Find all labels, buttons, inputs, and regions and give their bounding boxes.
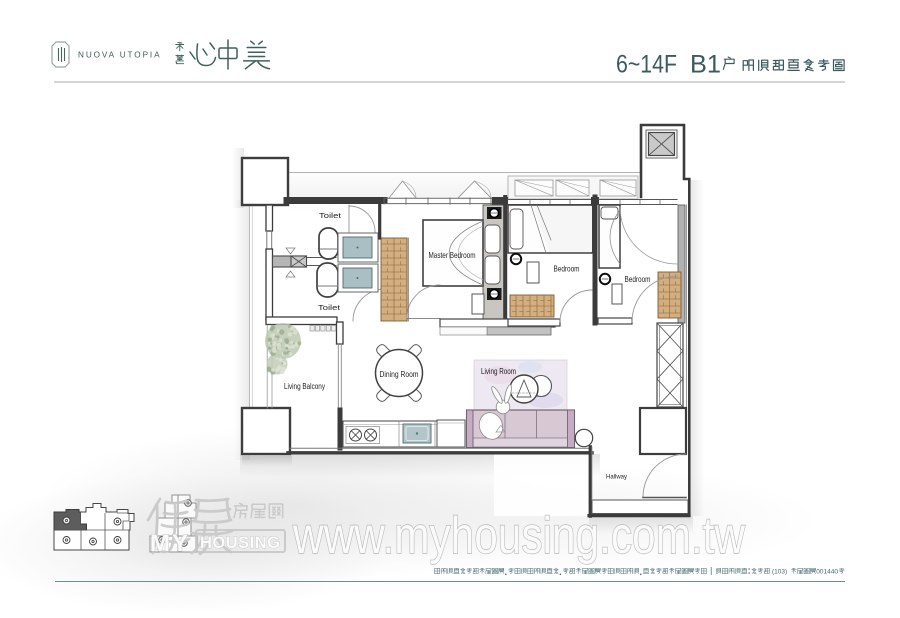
svg-text:Toilet: Toilet: [319, 211, 342, 220]
svg-text:6~14F: 6~14F: [616, 51, 677, 79]
svg-text:MY: MY: [150, 530, 190, 557]
svg-text:Hallway: Hallway: [606, 474, 628, 481]
svg-text:Bedroom: Bedroom: [625, 275, 651, 284]
svg-text:Living Room: Living Room: [481, 366, 516, 376]
svg-text:B1: B1: [690, 51, 721, 79]
svg-text:NUOVA UTOPIA: NUOVA UTOPIA: [78, 51, 161, 60]
svg-text:Living Balcony: Living Balcony: [284, 382, 325, 391]
svg-text:Master Bedroom: Master Bedroom: [429, 250, 476, 260]
svg-text:HOUSING: HOUSING: [200, 534, 281, 552]
svg-text:001440: 001440: [816, 568, 838, 575]
svg-text:Dining Room: Dining Room: [380, 369, 419, 379]
svg-text:Bedroom: Bedroom: [554, 265, 580, 274]
svg-text:Toilet: Toilet: [318, 303, 341, 312]
svg-text:www.myhousing.com.tw: www.myhousing.com.tw: [292, 507, 745, 565]
svg-text:(103): (103): [772, 568, 787, 575]
